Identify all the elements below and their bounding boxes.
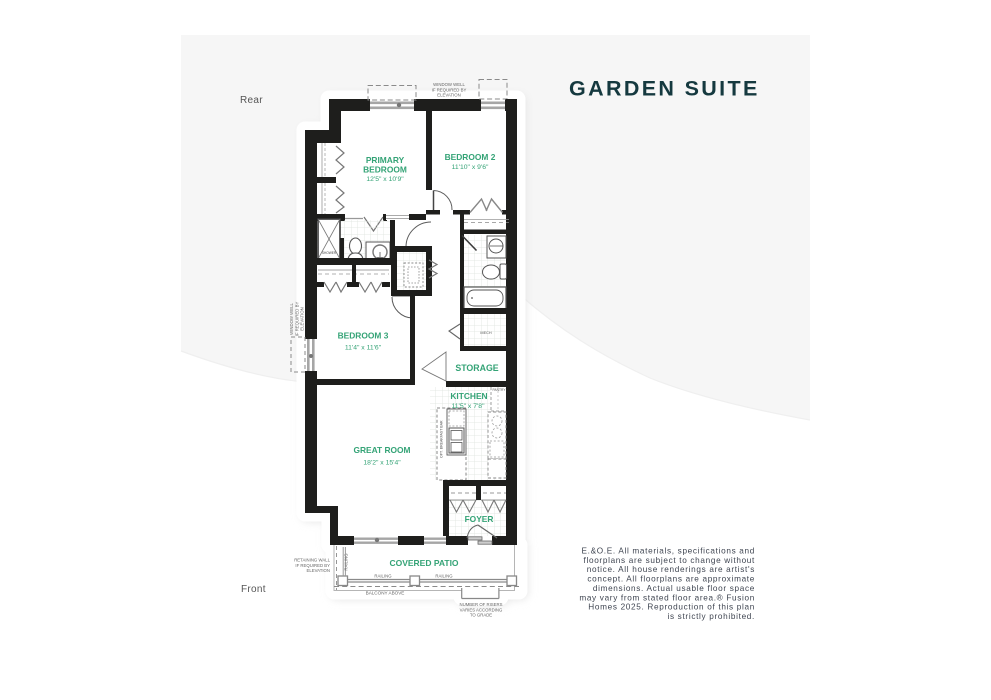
svg-text:concept. All floorplans are ap: concept. All floorplans are approximate <box>587 575 755 584</box>
svg-text:11'4" x 11'6": 11'4" x 11'6" <box>345 345 382 352</box>
svg-text:TO GRADE: TO GRADE <box>470 613 492 618</box>
svg-text:MECH: MECH <box>480 331 491 335</box>
svg-text:WINDOW WELL: WINDOW WELL <box>289 303 294 335</box>
svg-text:PRIMARY: PRIMARY <box>366 155 405 165</box>
svg-text:ELEVATION: ELEVATION <box>307 568 330 573</box>
svg-text:OPT. BREAKFAST BAR: OPT. BREAKFAST BAR <box>440 420 444 458</box>
svg-text:BALCONY ABOVE: BALCONY ABOVE <box>366 591 405 596</box>
svg-text:RETAINING WALL: RETAINING WALL <box>294 558 330 563</box>
svg-text:COVERED PATIO: COVERED PATIO <box>389 558 458 568</box>
svg-text:12'5" x 10'9": 12'5" x 10'9" <box>366 176 404 183</box>
svg-text:IF REQUIRED BY: IF REQUIRED BY <box>295 563 330 568</box>
svg-text:is strictly prohibited.: is strictly prohibited. <box>667 612 755 621</box>
svg-text:BEDROOM 2: BEDROOM 2 <box>445 152 496 162</box>
svg-text:RAILING: RAILING <box>435 574 453 579</box>
svg-text:floorplans are subject to chan: floorplans are subject to change without <box>584 556 756 565</box>
svg-text:Homes 2025. Reproduction of th: Homes 2025. Reproduction of this plan <box>588 603 755 612</box>
svg-text:dimensions. Actual usable floo: dimensions. Actual usable floor space <box>593 584 755 593</box>
svg-text:may vary from stated floor are: may vary from stated floor area.® Fusion <box>579 593 755 602</box>
svg-text:GARDEN SUITE: GARDEN SUITE <box>569 77 760 101</box>
svg-text:STORAGE: STORAGE <box>455 363 498 373</box>
svg-text:KITCHEN: KITCHEN <box>450 391 487 401</box>
svg-text:11'5" x 7'8": 11'5" x 7'8" <box>452 403 486 410</box>
svg-text:E.&O.E. All materials, specifi: E.&O.E. All materials, specifications an… <box>582 547 756 556</box>
svg-text:BEDROOM 3: BEDROOM 3 <box>338 331 389 341</box>
svg-text:ELEVATION: ELEVATION <box>300 307 305 330</box>
svg-text:11'10" x 9'6": 11'10" x 9'6" <box>452 164 489 171</box>
svg-text:Front: Front <box>241 584 266 595</box>
svg-text:RAILING: RAILING <box>344 553 349 571</box>
svg-text:RAILING: RAILING <box>374 574 392 579</box>
svg-text:Rear: Rear <box>240 95 263 106</box>
svg-text:ELEVATION: ELEVATION <box>437 93 460 98</box>
svg-text:18'2" x 15'4": 18'2" x 15'4" <box>363 460 401 467</box>
svg-text:FOYER: FOYER <box>465 514 494 524</box>
svg-text:VARIES ACCORDING: VARIES ACCORDING <box>460 607 503 612</box>
svg-text:notice. All house renderings a: notice. All house renderings are artist'… <box>587 565 755 574</box>
svg-text:SHOWER: SHOWER <box>322 251 337 255</box>
svg-text:WINDOW WELL: WINDOW WELL <box>433 82 465 87</box>
svg-text:NUMBER OF RISERS: NUMBER OF RISERS <box>460 602 503 607</box>
svg-text:BEDROOM: BEDROOM <box>363 165 407 175</box>
svg-text:IF REQUIRED BY: IF REQUIRED BY <box>432 87 467 92</box>
svg-text:GREAT ROOM: GREAT ROOM <box>353 445 410 455</box>
svg-text:PANTRY: PANTRY <box>492 388 506 392</box>
svg-text:IF REQUIRED BY: IF REQUIRED BY <box>294 302 299 337</box>
